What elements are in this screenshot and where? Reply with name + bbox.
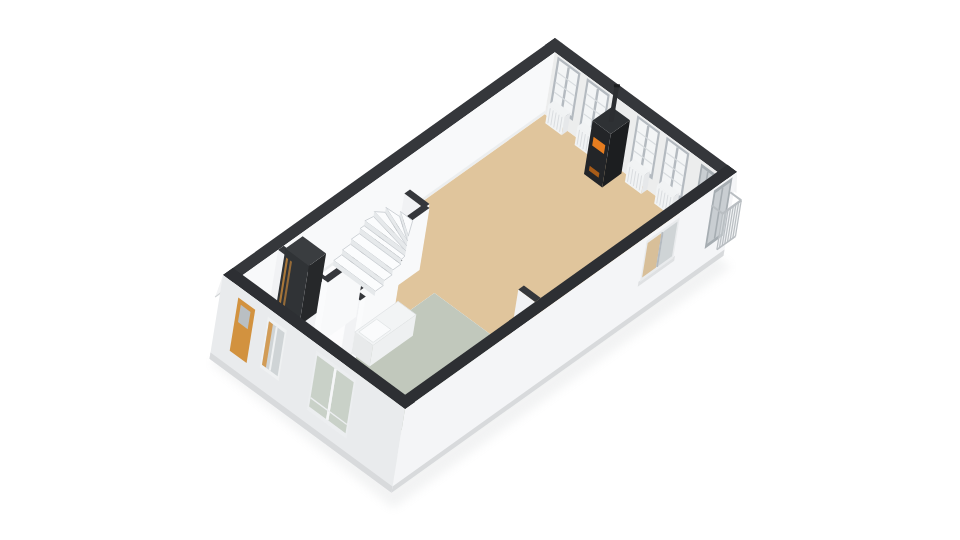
floorplan-3d-canvas (0, 0, 960, 540)
floorplan-viewer (0, 0, 960, 540)
stove-flue-cap (614, 84, 620, 87)
